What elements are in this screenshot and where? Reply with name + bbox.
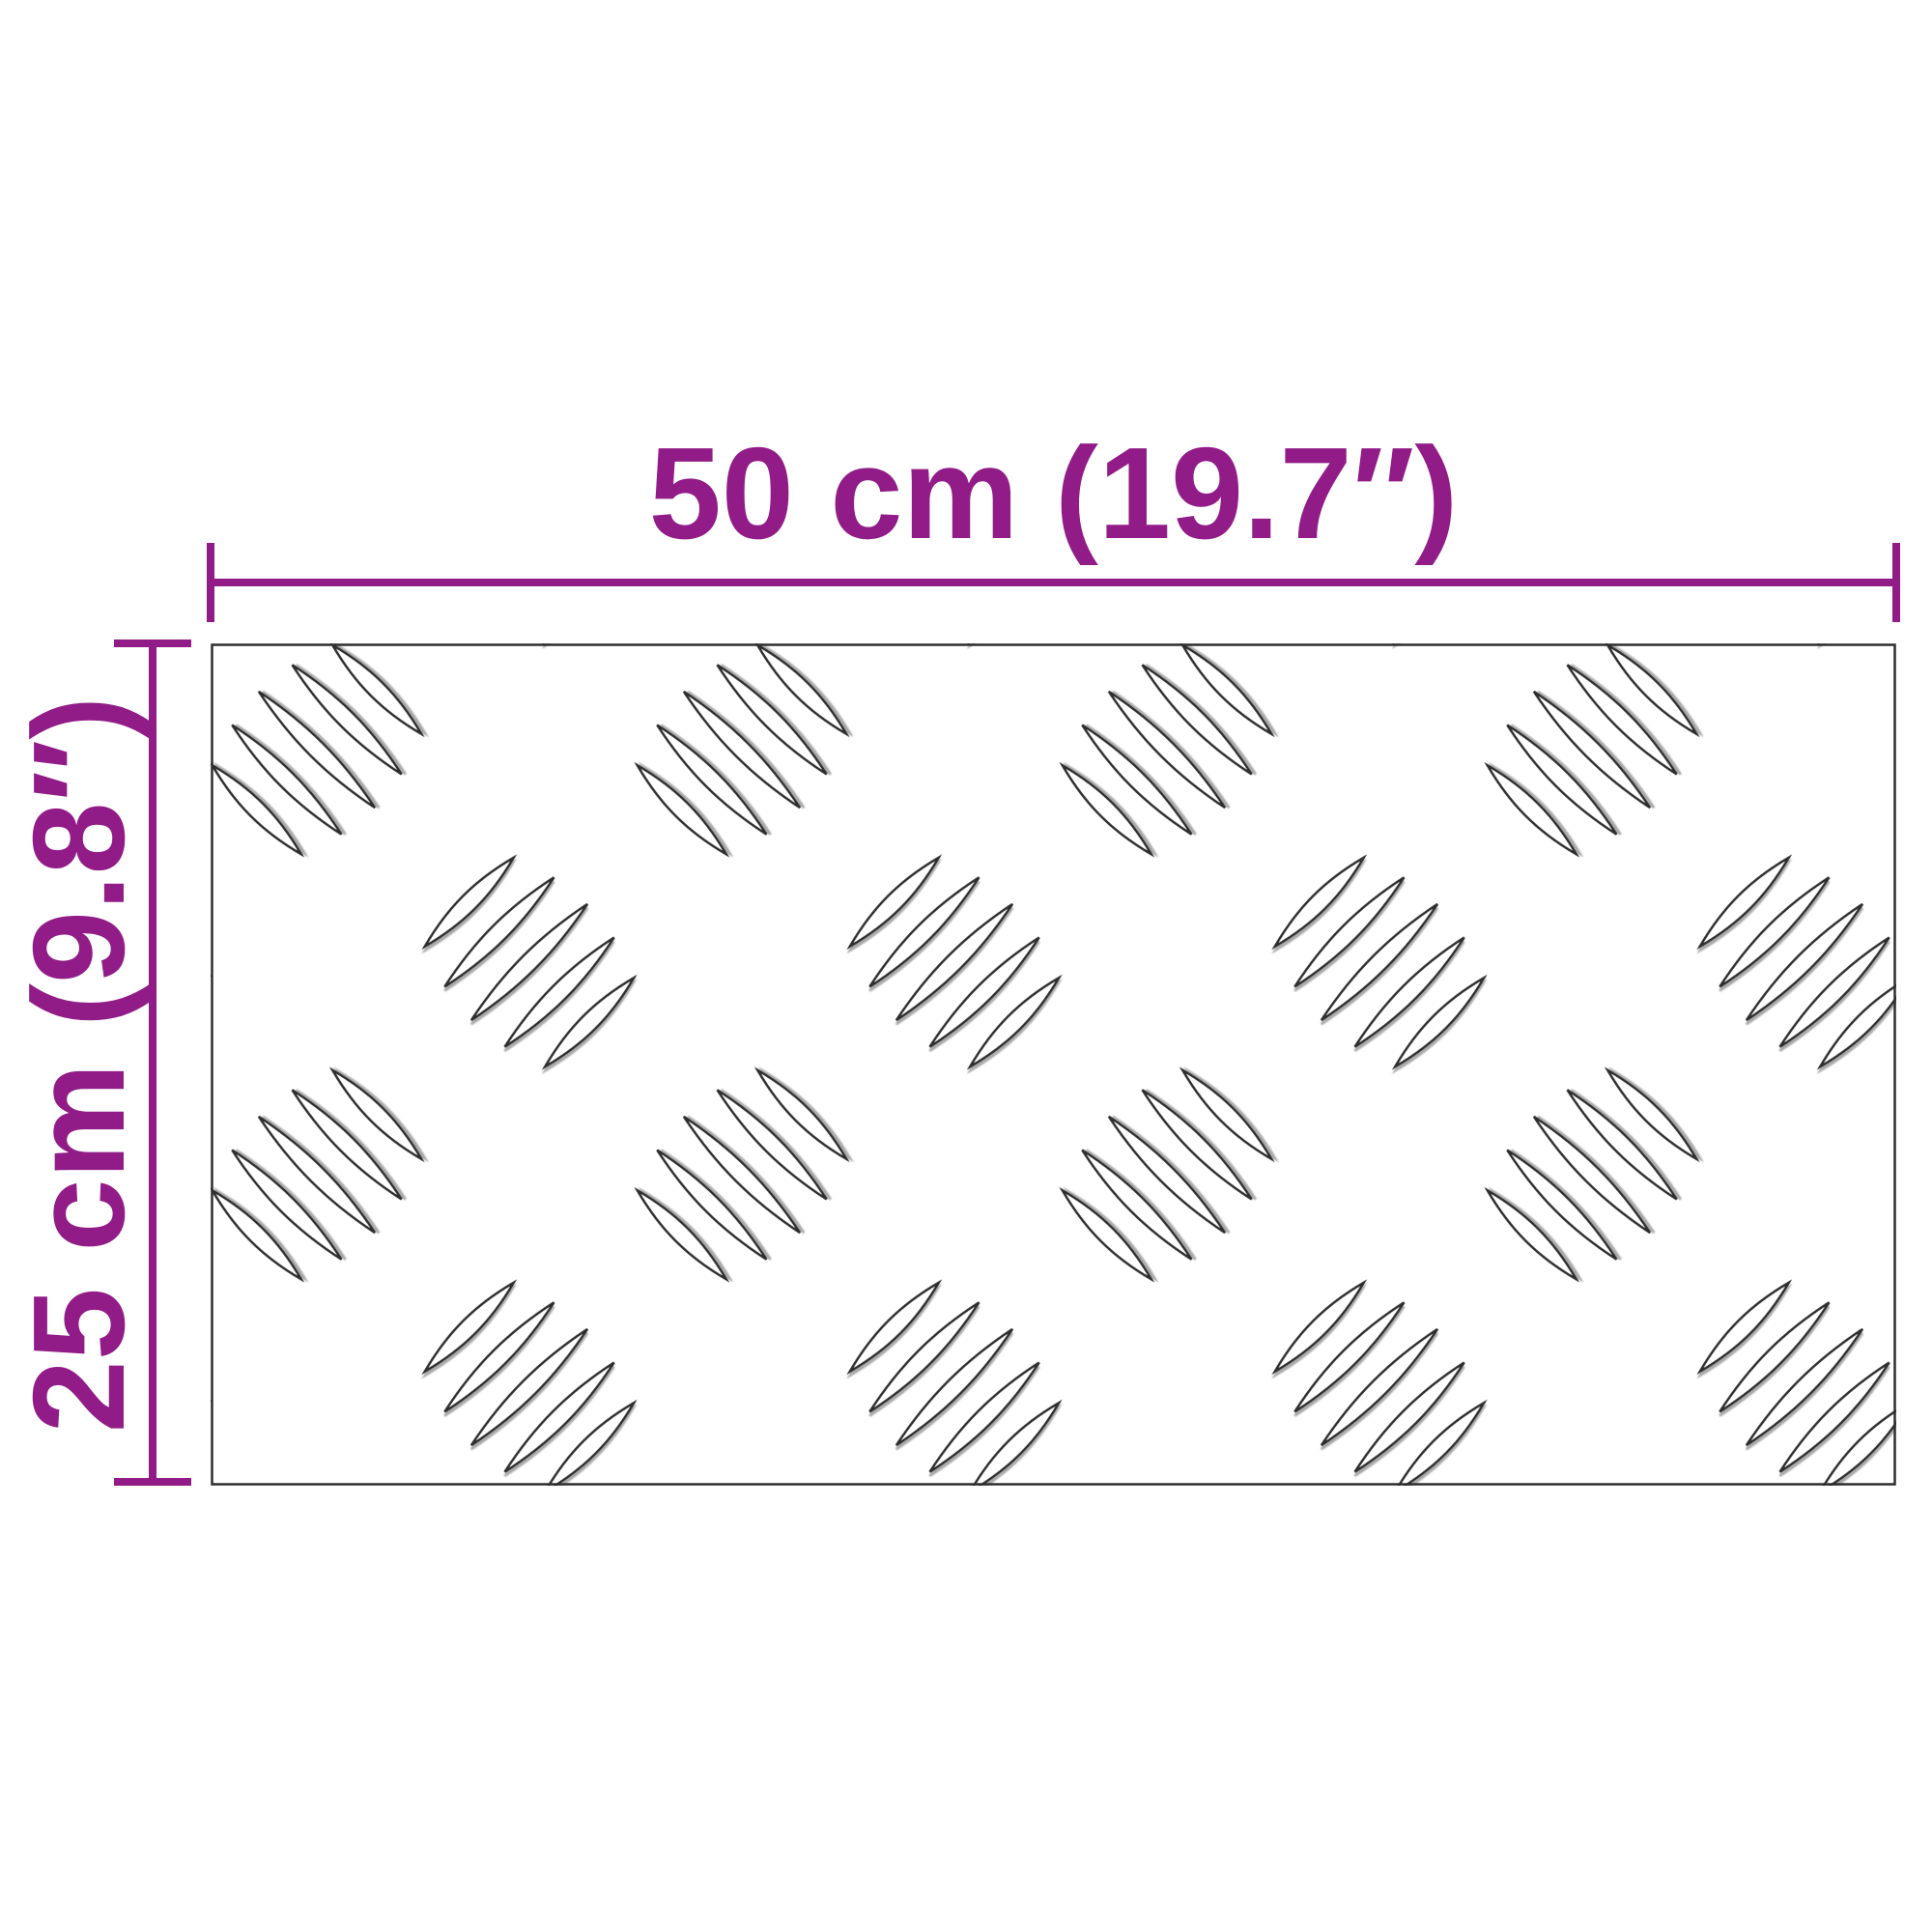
height-dimension-label: 25 cm (9.8″) <box>0 643 161 1486</box>
tread-pattern <box>211 643 1896 1486</box>
diagram-canvas: 50 cm (19.7″) 25 cm (9.8″) <box>0 0 1932 1932</box>
plate-drawing <box>211 643 1896 1486</box>
width-dimension-tick-left <box>207 543 214 622</box>
height-dimension-tick-bottom <box>114 1478 191 1486</box>
width-dimension-label: 50 cm (19.7″) <box>211 428 1896 558</box>
width-dimension-tick-right <box>1892 543 1900 622</box>
height-dimension-tick-top <box>114 639 191 647</box>
width-dimension-line <box>211 579 1896 586</box>
height-dimension-line <box>149 643 156 1486</box>
